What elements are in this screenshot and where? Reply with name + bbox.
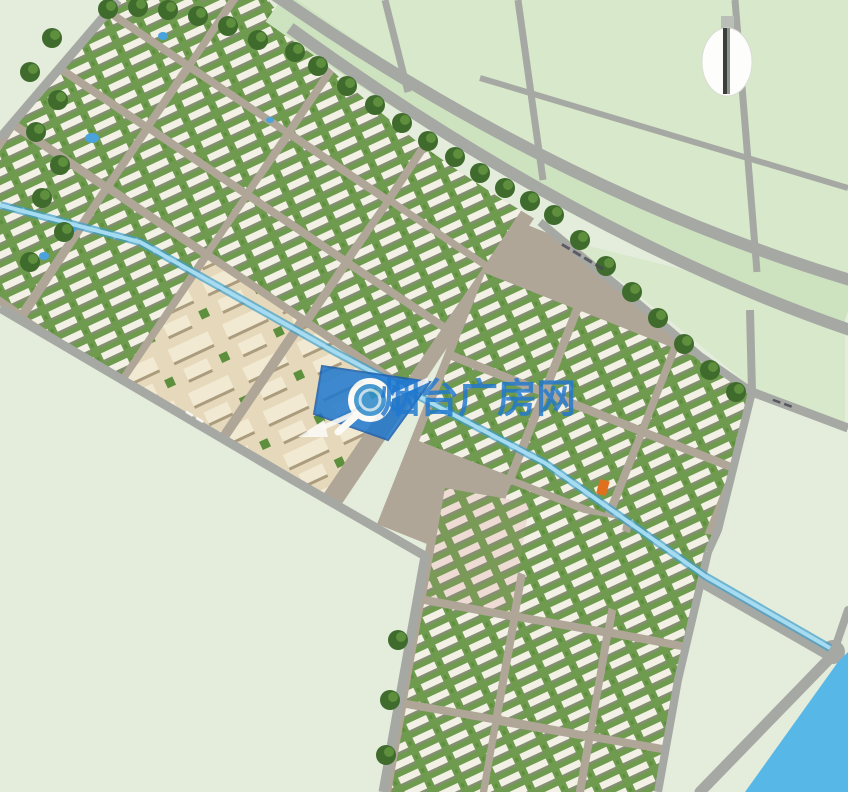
- watermark-text: 烟台广房网: [380, 377, 575, 421]
- map-canvas: 烟台广房网: [0, 0, 848, 792]
- site-plan-map: 烟台广房网: [0, 0, 848, 792]
